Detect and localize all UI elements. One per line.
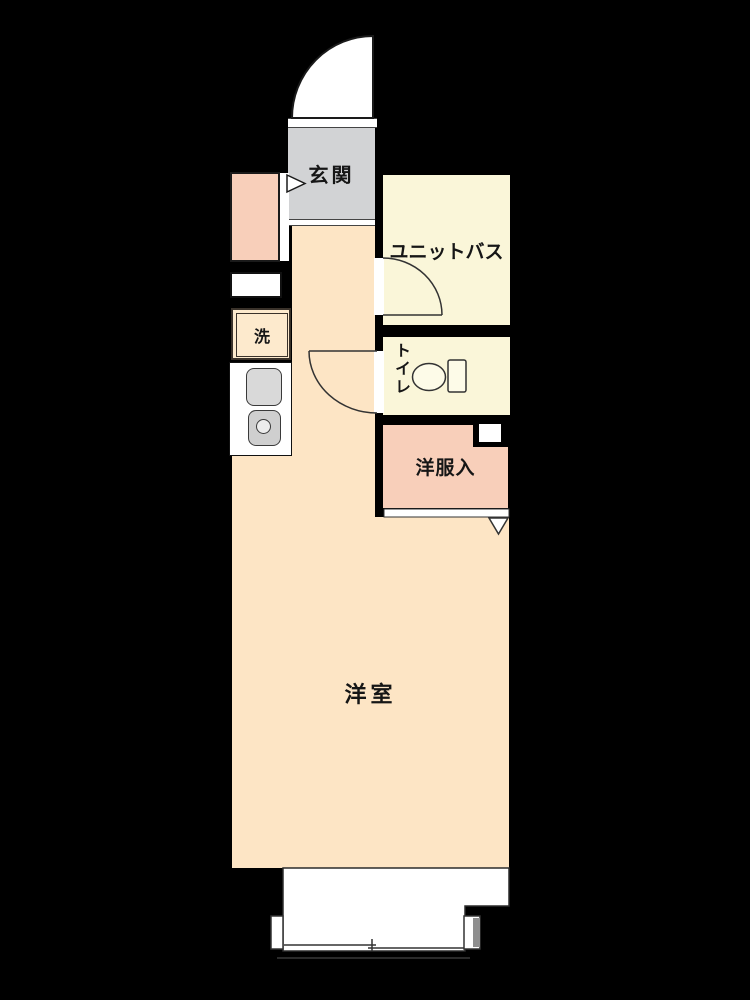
- left-wall-window: [230, 272, 282, 298]
- stove-icon: [248, 410, 281, 446]
- room-genkan: 玄関: [288, 128, 375, 219]
- sliding-window-icon: [284, 939, 464, 951]
- balcony-floor: [283, 868, 509, 951]
- room-closet-label: 洋服入: [415, 453, 475, 480]
- genkan-step-edge: [288, 219, 375, 226]
- kitchen-unit: [229, 362, 292, 456]
- room-toilet-label: トイレ: [389, 342, 413, 410]
- washer-space-inner: 洗: [236, 313, 288, 357]
- room-unit-bath-label: ユニットバス: [389, 237, 503, 264]
- shoe-cabinet-opening: [280, 173, 289, 261]
- room-closet: 洋服入: [383, 425, 508, 508]
- sink-icon: [246, 368, 282, 406]
- room-genkan-label: 玄関: [309, 159, 355, 188]
- balcony-wall-stub-left: [271, 916, 283, 949]
- entrance-threshold: [288, 118, 377, 128]
- shoe-cabinet: [230, 172, 280, 262]
- room-unit-bath: ユニットバス: [383, 175, 510, 325]
- entrance-door-swing-icon: [292, 36, 373, 118]
- washer-space: 洗: [231, 308, 291, 360]
- room-main: 洋室: [232, 517, 509, 868]
- washer-space-label: 洗: [254, 323, 270, 347]
- room-toilet: トイレ: [383, 337, 510, 415]
- balcony-wall-stub-right: [464, 916, 480, 949]
- closet-door-band: [384, 509, 509, 517]
- room-main-label: 洋室: [344, 677, 396, 709]
- burner-icon: [256, 419, 271, 434]
- floor-plan: 玄関 洋室 洗 ユニットバス トイレ 洋服入: [0, 0, 750, 1000]
- balcony-stub-gray: [473, 918, 480, 947]
